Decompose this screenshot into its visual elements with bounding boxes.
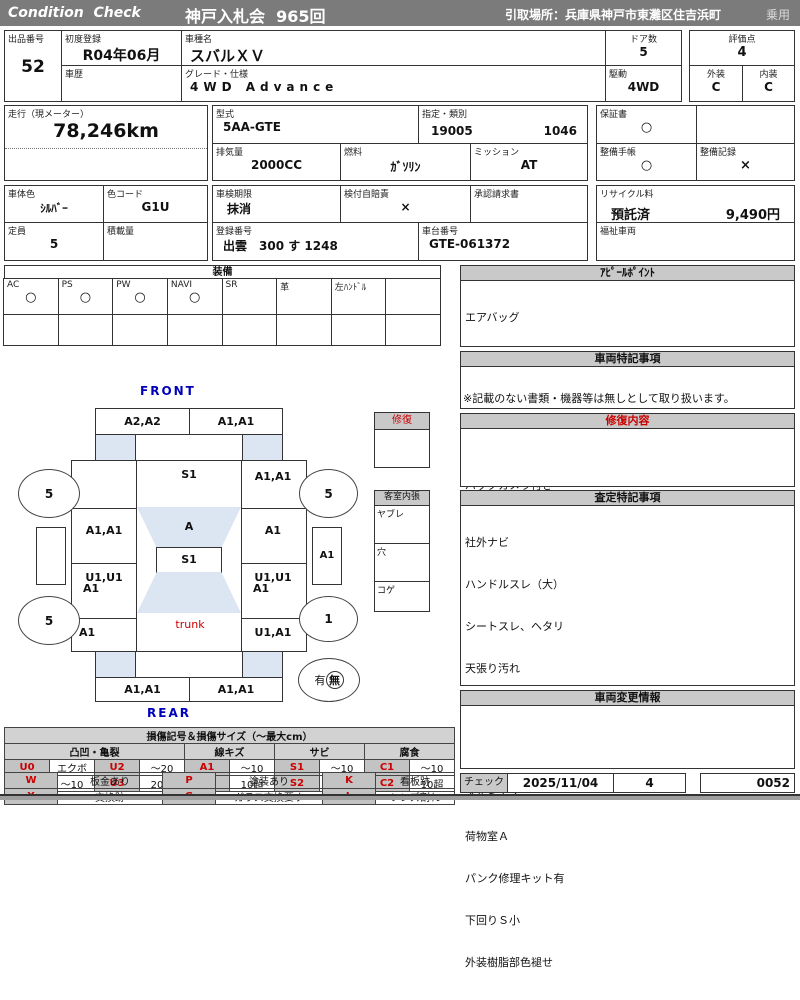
- displacement-label: 排気量: [213, 144, 340, 158]
- equipment-cell-pw: PW ○: [112, 278, 168, 346]
- special-notes-title: 車両特記事項: [461, 352, 794, 367]
- equipment-header: 装備: [4, 265, 441, 279]
- body-divider-left: [136, 460, 137, 652]
- appeal-panel: ｱﾋﾟｰﾙﾎﾟｲﾝﾄ エアバッグ ABS ETC プッシュスタート フロントパワ…: [460, 265, 795, 347]
- history-label: 車歴: [62, 66, 181, 80]
- transmission-box: ミッション AT: [470, 143, 588, 181]
- color-code-label: 色コード: [104, 186, 207, 200]
- capacity-label: 定員: [5, 223, 103, 237]
- approval-label: 承認請求書: [471, 186, 587, 200]
- insurance-box: 検付自賠責 ×: [340, 185, 471, 223]
- legend-group-rust: サビ: [275, 744, 365, 760]
- score-value: 4: [690, 45, 794, 60]
- score-box: 評価点 4: [689, 30, 795, 66]
- registration-number-box: 登録番号 出雲 300 す 1248: [212, 222, 419, 261]
- equipment-grid: AC ○ PS ○ PW ○ NAVI ○ SR 革 左ﾊﾝﾄﾞﾙ: [4, 278, 441, 346]
- cabin-row-tear: ヤブレ: [375, 506, 429, 544]
- body-line: [241, 563, 307, 564]
- inspection-label: 車検期限: [213, 186, 340, 200]
- cabin-lining-box: 客室内張 ヤブレ 穴 コゲ: [374, 490, 430, 612]
- repair-mini-title: 修復: [375, 413, 429, 430]
- lot-number-value: 52: [5, 57, 61, 77]
- repair-marks-legend-table: W 板金あり P 塗装あり K 看板跡 X 交換跡 G ガラス交換要す L レン…: [4, 772, 455, 805]
- equipment-cell-navi: NAVI ○: [167, 278, 223, 346]
- equipment-value-ps: ○: [59, 290, 113, 305]
- mirror-right: A1: [312, 527, 342, 585]
- maintenance-book-value: ○: [597, 158, 696, 173]
- maintenance-record-label: 整備記録: [697, 144, 794, 158]
- first-registration-value: R04年06月: [62, 45, 181, 65]
- legend-group-dents: 凸凹・亀裂: [5, 744, 185, 760]
- special-notes-panel: 車両特記事項 ※記載のない書類・機器等は無しとして取り扱います。: [460, 351, 795, 409]
- assessment-line: 天張り汚れ: [465, 662, 790, 676]
- body-line: [71, 508, 136, 509]
- class-code-value-2: 1046: [544, 124, 577, 138]
- exterior-grade-value: C: [690, 80, 742, 94]
- warranty-empty-box: [696, 105, 795, 144]
- class-code-value-1: 19005: [431, 124, 473, 138]
- model-code-box: 型式 5AA-GTE: [212, 105, 419, 144]
- chassis-number-label: 車台番号: [419, 223, 587, 237]
- wheel-front-left: 5: [18, 469, 80, 518]
- panel-front-bumper-right: A1,A1: [189, 408, 283, 435]
- equipment-label-leather: 革: [277, 279, 331, 293]
- equipment-label-ps: PS: [59, 279, 113, 290]
- fuel-box: 燃料 ｶﾞｿﾘﾝ: [340, 143, 471, 181]
- panel-left-fender-rear: A1: [75, 626, 115, 639]
- equipment-cell-ps: PS ○: [58, 278, 114, 346]
- maintenance-book-box: 整備手帳 ○: [596, 143, 697, 181]
- mirror-left: [36, 527, 66, 585]
- maintenance-record-value: ×: [697, 158, 794, 173]
- insurance-value: ×: [341, 200, 470, 214]
- legend2-value: 塗装あり: [216, 773, 323, 789]
- assessment-line: パンク修理キット有: [465, 872, 790, 886]
- history-box: 車歴: [61, 65, 182, 102]
- equipment-label-pw: PW: [113, 279, 167, 290]
- transmission-value: AT: [471, 158, 587, 172]
- model-code-value: 5AA-GTE: [213, 120, 418, 134]
- equipment-cell-ac: AC ○: [3, 278, 59, 346]
- model-code-label: 型式: [213, 106, 418, 120]
- auction-title: 神戸入札会 965回: [185, 3, 326, 27]
- doors-value: 5: [606, 45, 681, 59]
- diagram-rear-label: REAR: [147, 706, 191, 720]
- legend2-value: 板金あり: [58, 773, 163, 789]
- repair-content-title: 修復内容: [461, 414, 794, 429]
- panel-right-door-rear-line2: A1: [245, 583, 301, 594]
- panel-left-door-front: A1,A1: [75, 524, 133, 537]
- wheel-front-right: 5: [299, 469, 358, 518]
- equipment-label-sr: SR: [223, 279, 277, 290]
- special-notes-note: ※記載のない書類・機器等は無しとして取り扱います。: [463, 390, 735, 406]
- color-code-value: G1U: [104, 200, 207, 214]
- panel-right-fender-rear: U1,A1: [243, 626, 303, 639]
- panel-right-door-front: A1: [245, 524, 301, 537]
- assessment-panel: 査定特記事項 社外ナビ ハンドルスレ（大） シートスレ、ヘタリ 天張り汚れ フロ…: [460, 490, 795, 686]
- equipment-label-ac: AC: [4, 279, 58, 290]
- equipment-cell-lhd: 左ﾊﾝﾄﾞﾙ: [331, 278, 387, 346]
- drive-label: 駆動: [606, 66, 681, 80]
- maintenance-book-label: 整備手帳: [597, 144, 696, 158]
- registration-number-label: 登録番号: [213, 223, 418, 237]
- page-bottom-strip: [0, 794, 800, 800]
- taillight-right: [242, 651, 283, 678]
- panel-left-door-rear: U1,U1 A1: [75, 572, 133, 594]
- body-color-label: 車体色: [5, 186, 103, 200]
- warranty-box: 保証書 ○: [596, 105, 697, 144]
- assessment-line: 荷物室Ａ: [465, 830, 790, 844]
- vehicle-class: 乗用: [766, 6, 790, 23]
- score-label: 評価点: [690, 31, 794, 45]
- model-box: 車種名 スバルＸＶ: [181, 30, 606, 66]
- cabin-row-burn: コゲ: [375, 582, 429, 618]
- capacity-box: 定員 5: [4, 222, 104, 261]
- pickup-location: 引取場所：兵庫県神戸市東灘区住吉浜町: [505, 6, 721, 23]
- drive-box: 駆動 4WD: [605, 65, 682, 102]
- equipment-value-navi: ○: [168, 290, 222, 305]
- welfare-box: 福祉車両: [596, 222, 795, 261]
- legend-group-scratch: 線キズ: [185, 744, 275, 760]
- cabin-row-hole: 穴: [375, 544, 429, 582]
- warranty-label: 保証書: [597, 106, 696, 120]
- doors-box: ドア数 5: [605, 30, 682, 66]
- mileage-box: 走行（現メーター） 78,246km: [4, 105, 208, 181]
- grade-box: グレード・仕様 4WD Advance: [181, 65, 606, 102]
- legend2-code: W: [5, 773, 58, 789]
- assessment-line: ハンドルスレ（大）: [465, 578, 790, 592]
- mileage-value: 78,246km: [5, 120, 207, 142]
- inspection-box: 車検期限 抹消: [212, 185, 341, 223]
- taillight-left: [95, 651, 136, 678]
- panel-right-door-rear: U1,U1 A1: [245, 572, 301, 594]
- displacement-box: 排気量 2000CC: [212, 143, 341, 181]
- equipment-label-navi: NAVI: [168, 279, 222, 290]
- recycle-fee-value: 9,490円: [726, 204, 780, 223]
- legend2-code: P: [163, 773, 216, 789]
- assessment-line: 社外ナビ: [465, 536, 790, 550]
- equipment-value-pw: ○: [113, 290, 167, 305]
- approval-box: 承認請求書: [470, 185, 588, 223]
- lot-number-box: 出品番号 52: [4, 30, 62, 102]
- headlight-right: [242, 434, 283, 461]
- first-registration-box: 初度登録 R04年06月: [61, 30, 182, 66]
- load-capacity-box: 積載量: [103, 222, 208, 261]
- body-line: [71, 618, 136, 619]
- first-registration-label: 初度登録: [62, 31, 181, 45]
- fuel-value: ｶﾞｿﾘﾝ: [341, 158, 470, 175]
- inspection-value: 抹消: [213, 200, 340, 217]
- body-line: [241, 508, 307, 509]
- assessment-title: 査定特記事項: [461, 491, 794, 506]
- panel-front-bumper-left: A2,A2: [95, 408, 190, 435]
- wheel-rear-right: 1: [299, 596, 358, 642]
- check-code: 0052: [700, 773, 795, 793]
- grade-value: 4WD Advance: [182, 80, 605, 94]
- windshield-label: A: [137, 520, 241, 533]
- equipment-cell-leather: 革: [276, 278, 332, 346]
- interior-grade-value: C: [743, 80, 794, 94]
- appeal-title: ｱﾋﾟｰﾙﾎﾟｲﾝﾄ: [461, 266, 794, 281]
- headlight-left: [95, 434, 136, 461]
- equipment-cell-sr: SR: [222, 278, 278, 346]
- check-date: 2025/11/04: [507, 773, 614, 793]
- panel-rear-bumper-left: A1,A1: [95, 677, 190, 702]
- transmission-label: ミッション: [471, 144, 587, 158]
- load-capacity-label: 積載量: [104, 223, 207, 237]
- model-value: スバルＸＶ: [182, 45, 605, 66]
- exterior-grade-label: 外装: [690, 66, 742, 80]
- chassis-number-box: 車台番号 GTE-061372: [418, 222, 588, 261]
- legend2-value: 看板跡: [376, 773, 455, 789]
- repair-mini-box: 修復: [374, 412, 430, 468]
- body-divider-right: [241, 460, 242, 652]
- warranty-value: ○: [597, 120, 696, 135]
- capacity-value: 5: [5, 237, 103, 251]
- equipment-cell-extra: [385, 278, 441, 346]
- welfare-label: 福祉車両: [597, 223, 794, 237]
- legend2-code: K: [323, 773, 376, 789]
- registration-number-value: 出雲 300 す 1248: [213, 237, 418, 254]
- grade-label: グレード・仕様: [182, 66, 605, 80]
- panel-right-fender-front: A1,A1: [243, 470, 303, 483]
- panel-roof: S1: [156, 547, 222, 573]
- equipment-label-lhd: 左ﾊﾝﾄﾞﾙ: [332, 279, 386, 293]
- recycle-status: 預託済: [611, 204, 650, 223]
- check-label: チェック: [460, 773, 508, 793]
- recycle-fee-label: リサイクル料: [597, 186, 794, 200]
- maintenance-record-box: 整備記録 ×: [696, 143, 795, 181]
- diagram-front-label: FRONT: [140, 384, 196, 398]
- mileage-label: 走行（現メーター）: [5, 106, 207, 120]
- repair-content-panel: 修復内容: [460, 413, 795, 487]
- body-line: [241, 618, 307, 619]
- cabin-lining-title: 客室内張: [375, 491, 429, 506]
- body-line: [71, 563, 136, 564]
- panel-rear-bumper-right: A1,A1: [189, 677, 283, 702]
- doors-label: ドア数: [606, 31, 681, 45]
- exterior-grade-box: 外装 C: [689, 65, 743, 102]
- class-code-label: 指定・類別: [419, 106, 587, 120]
- chassis-number-value: GTE-061372: [419, 237, 587, 251]
- fuel-label: 燃料: [341, 144, 470, 158]
- appeal-line: エアバッグ: [465, 311, 790, 325]
- class-code-box: 指定・類別 19005 1046: [418, 105, 588, 144]
- color-code-box: 色コード G1U: [103, 185, 208, 223]
- assessment-line: 外装樹脂部色褪せ: [465, 956, 790, 970]
- legend-title: 損傷記号＆損傷サイズ（〜最大cm）: [5, 728, 455, 744]
- spare-yes-label: 有: [315, 672, 326, 688]
- body-color-value: ｼﾙﾊﾞｰ: [5, 200, 103, 216]
- interior-grade-box: 内装 C: [742, 65, 795, 102]
- drive-value: 4WD: [606, 80, 681, 94]
- change-info-title: 車両変更情報: [461, 691, 794, 706]
- panel-trunk-label: trunk: [152, 618, 228, 631]
- spare-tire-indicator: 有 無: [298, 658, 360, 702]
- equipment-value-ac: ○: [4, 290, 58, 305]
- check-value: 4: [613, 773, 686, 793]
- body-color-box: 車体色 ｼﾙﾊﾞｰ: [4, 185, 104, 223]
- panel-left-door-rear-line2: A1: [75, 583, 133, 594]
- panel-hood: S1: [150, 468, 228, 481]
- model-label: 車種名: [182, 31, 605, 45]
- legend-group-corrosion: 腐食: [365, 744, 455, 760]
- displacement-value: 2000CC: [213, 158, 340, 172]
- assessment-line: 下回りＳ小: [465, 914, 790, 928]
- recycle-fee-box: リサイクル料 預託済 9,490円: [596, 185, 795, 223]
- brand-logo: Condition Check: [8, 5, 141, 21]
- title-bar: Condition Check 神戸入札会 965回 引取場所：兵庫県神戸市東灘…: [0, 0, 800, 26]
- insurance-label: 検付自賠責: [341, 186, 470, 200]
- spare-no-label: 無: [326, 671, 344, 689]
- wheel-rear-left: 5: [18, 596, 80, 645]
- lot-number-label: 出品番号: [5, 31, 61, 45]
- change-info-panel: 車両変更情報: [460, 690, 795, 769]
- interior-grade-label: 内装: [743, 66, 794, 80]
- assessment-line: シートスレ、ヘタリ: [465, 620, 790, 634]
